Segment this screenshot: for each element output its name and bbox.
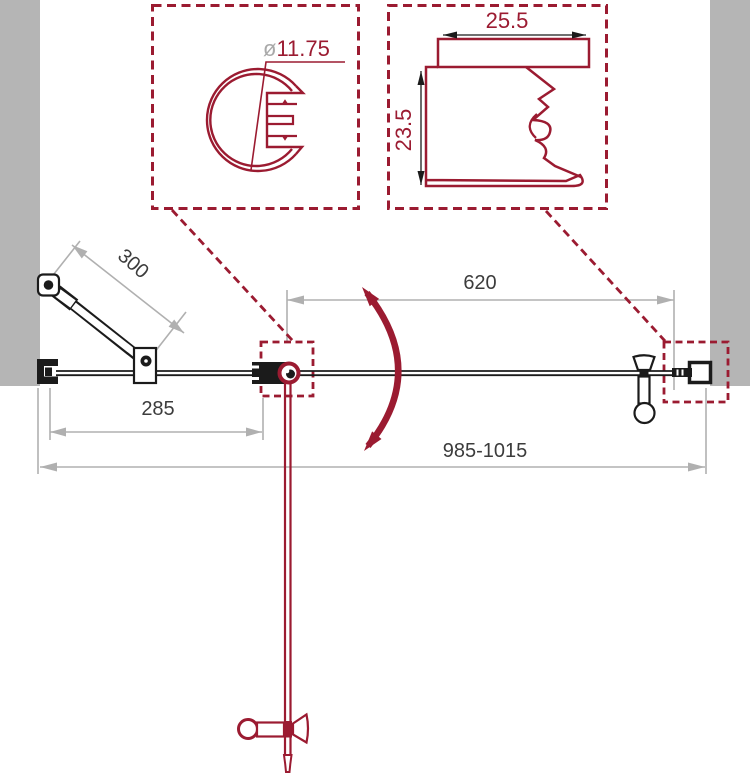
fixed-panel-dimension-label: 285 [141, 399, 174, 419]
wall-profile-drawing [418, 32, 590, 187]
callout-leader-left [172, 210, 293, 341]
door-hinge [252, 362, 299, 384]
wall-profile-depth-label: 23.5 [393, 109, 415, 152]
open-door-handle [239, 715, 309, 743]
support-strut [38, 275, 156, 384]
total-width-dimension-label: 985-1015 [443, 441, 528, 461]
door-swing-arrow [362, 287, 398, 451]
diameter-symbol: ø [263, 36, 276, 61]
wall-profile-width-label: 25.5 [486, 10, 529, 32]
callout-leader-right [546, 211, 665, 341]
drawing-layer [0, 0, 750, 776]
hinge-profile-drawing [207, 62, 345, 171]
right-wall-bracket [672, 363, 711, 383]
dimension-total-width-line [38, 388, 706, 474]
open-door-outline [239, 383, 309, 772]
door-handle [634, 355, 655, 423]
open-door-bottom-pivot [284, 755, 292, 772]
technical-drawing-canvas: ø11.75 25.5 23.5 300 620 285 985-1015 [0, 0, 750, 776]
diameter-value: 11.75 [276, 36, 329, 61]
left-wall-bracket [37, 359, 58, 384]
diameter-label: ø11.75 [263, 38, 330, 60]
door-width-dimension-label: 620 [463, 273, 496, 293]
